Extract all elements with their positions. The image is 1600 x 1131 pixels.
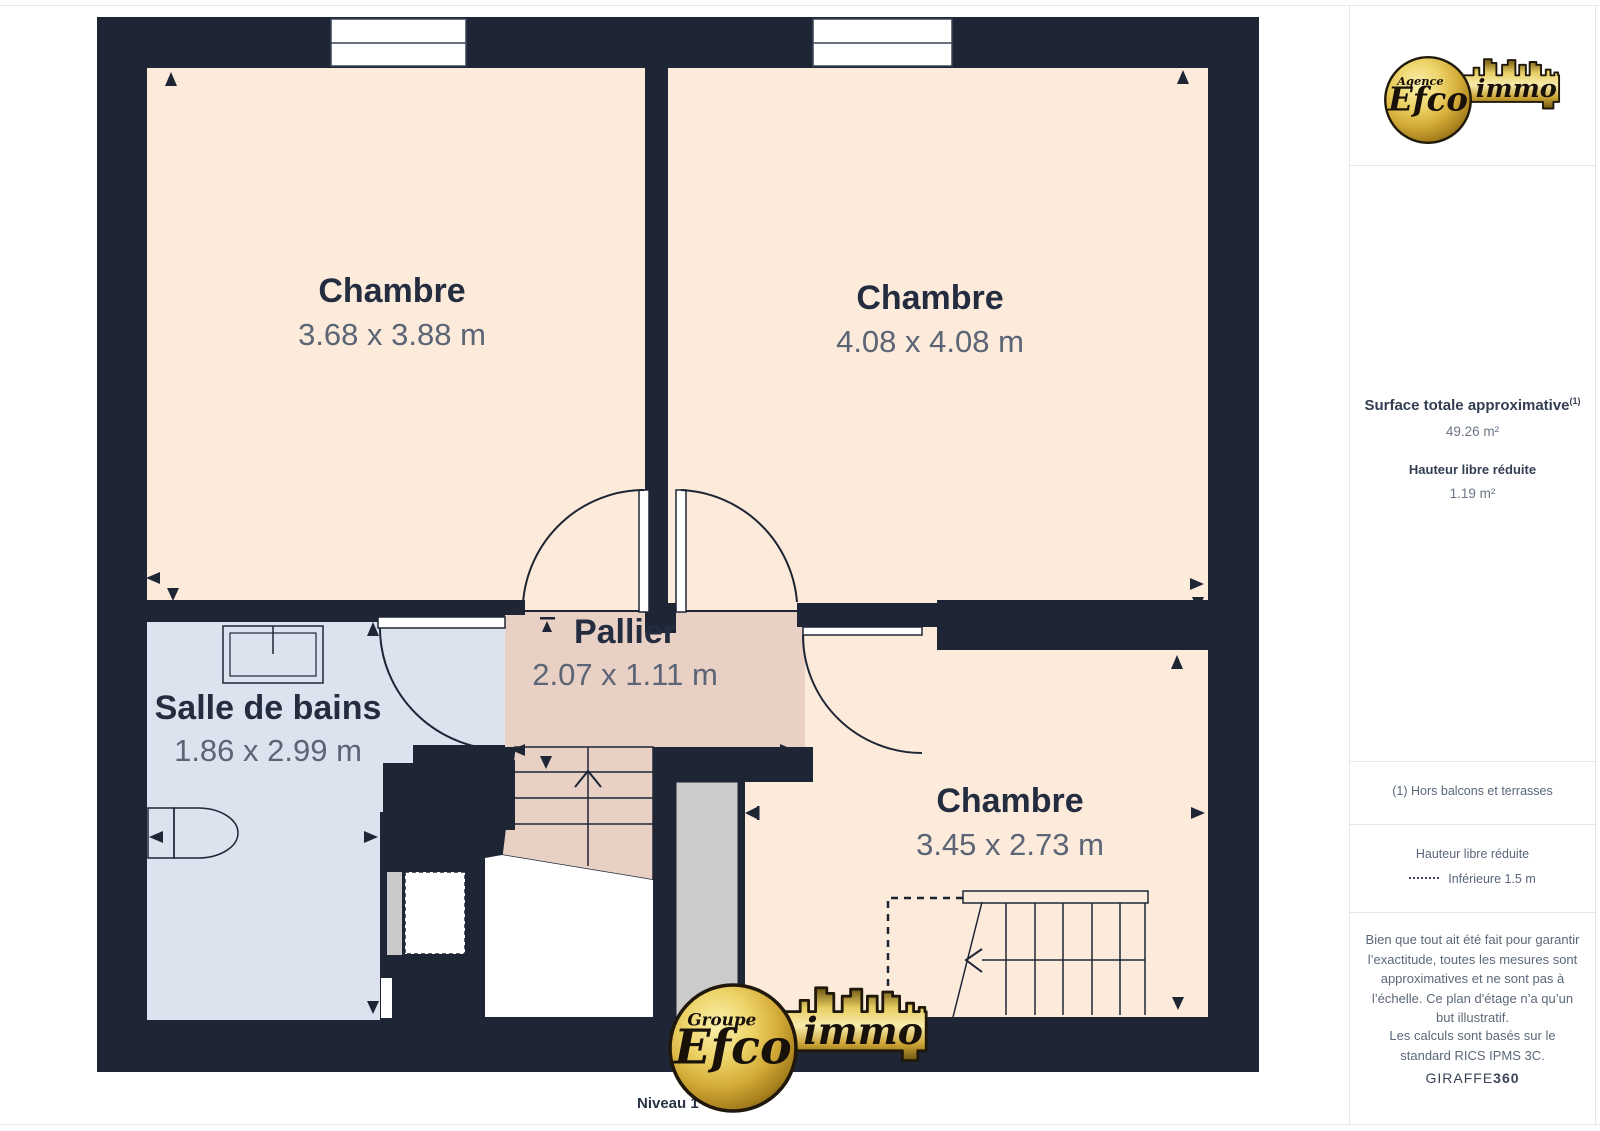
room-dims-salle-de-bains: 1.86 x 2.99 m bbox=[174, 733, 362, 768]
door-leaf bbox=[676, 490, 686, 612]
reduced-height-title: Hauteur libre réduite bbox=[1350, 462, 1595, 477]
sidebar-divider bbox=[1350, 912, 1595, 913]
giraffe360-brand: GIRAFFE360 bbox=[1350, 1070, 1595, 1086]
room-dims-chambre-3: 3.45 x 2.73 m bbox=[916, 827, 1104, 862]
sidebar-divider bbox=[1350, 165, 1595, 166]
brand-suffix-text: 360 bbox=[1493, 1070, 1519, 1086]
room-label-salle-de-bains: Salle de bains bbox=[155, 689, 382, 727]
wall-segment bbox=[480, 760, 515, 830]
low-height-closet bbox=[405, 872, 465, 954]
wall-recess bbox=[381, 978, 392, 1018]
wall-segment bbox=[653, 782, 676, 880]
legend-item-label: Inférieure 1.5 m bbox=[1448, 872, 1536, 886]
stair-void-shaft bbox=[676, 782, 738, 1017]
view-arrow-bar bbox=[540, 617, 555, 620]
surface-total-value: 49.26 m² bbox=[1350, 424, 1595, 439]
room-label-chambre-3: Chambre bbox=[936, 782, 1083, 820]
brand-text: GIRAFFE bbox=[1425, 1070, 1493, 1086]
room-dims-pallier: 2.07 x 1.11 m bbox=[532, 657, 718, 692]
sidebar-divider bbox=[1350, 761, 1595, 762]
disclaimer-text: Bien que tout ait été fait pour garantir… bbox=[1365, 930, 1580, 1028]
room-label-chambre-2: Chambre bbox=[856, 279, 1003, 317]
standard-note-text: Les calculs sont basés sur le standard R… bbox=[1365, 1026, 1580, 1065]
balcony-footnote: (1) Hors balcons et terrasses bbox=[1350, 784, 1595, 798]
surface-total-title-text: Surface totale approximative bbox=[1364, 397, 1569, 414]
dotted-line-icon bbox=[1409, 877, 1439, 879]
wall-segment bbox=[378, 600, 525, 615]
room-dims-chambre-2: 4.08 x 4.08 m bbox=[836, 324, 1024, 359]
door-leaf bbox=[803, 627, 922, 635]
logo-name-text: Efco bbox=[672, 1019, 791, 1075]
surface-total-title: Surface totale approximative(1) bbox=[1350, 396, 1595, 414]
wall-segment bbox=[937, 600, 1208, 650]
page-bottom-border bbox=[0, 1124, 1600, 1125]
legend-row: Inférieure 1.5 m bbox=[1350, 872, 1595, 886]
door-leaf bbox=[378, 617, 505, 628]
reduced-height-value: 1.19 m² bbox=[1350, 486, 1595, 501]
room-dims-chambre-1: 3.68 x 3.88 m bbox=[298, 317, 486, 352]
room-label-chambre-1: Chambre bbox=[318, 272, 465, 310]
logo-suffix-text: immo bbox=[803, 1009, 923, 1053]
sidebar-divider bbox=[1350, 824, 1595, 825]
surface-footnote-marker: (1) bbox=[1570, 396, 1581, 406]
under-stairs-void bbox=[485, 855, 653, 1017]
door-leaf bbox=[639, 490, 649, 612]
stairs-top-bar bbox=[963, 891, 1148, 903]
utility-shaft bbox=[387, 872, 402, 955]
wall-segment bbox=[653, 747, 813, 782]
legend-title: Hauteur libre réduite bbox=[1350, 847, 1595, 861]
level-label: Niveau 1 bbox=[637, 1095, 699, 1112]
info-sidebar: Surface totale approximative(1) 49.26 m²… bbox=[1349, 6, 1596, 1124]
room-label-pallier: Pallier bbox=[574, 613, 676, 651]
wall-segment bbox=[147, 600, 378, 622]
view-arrow-bar bbox=[757, 806, 760, 820]
wall-segment bbox=[797, 603, 937, 627]
